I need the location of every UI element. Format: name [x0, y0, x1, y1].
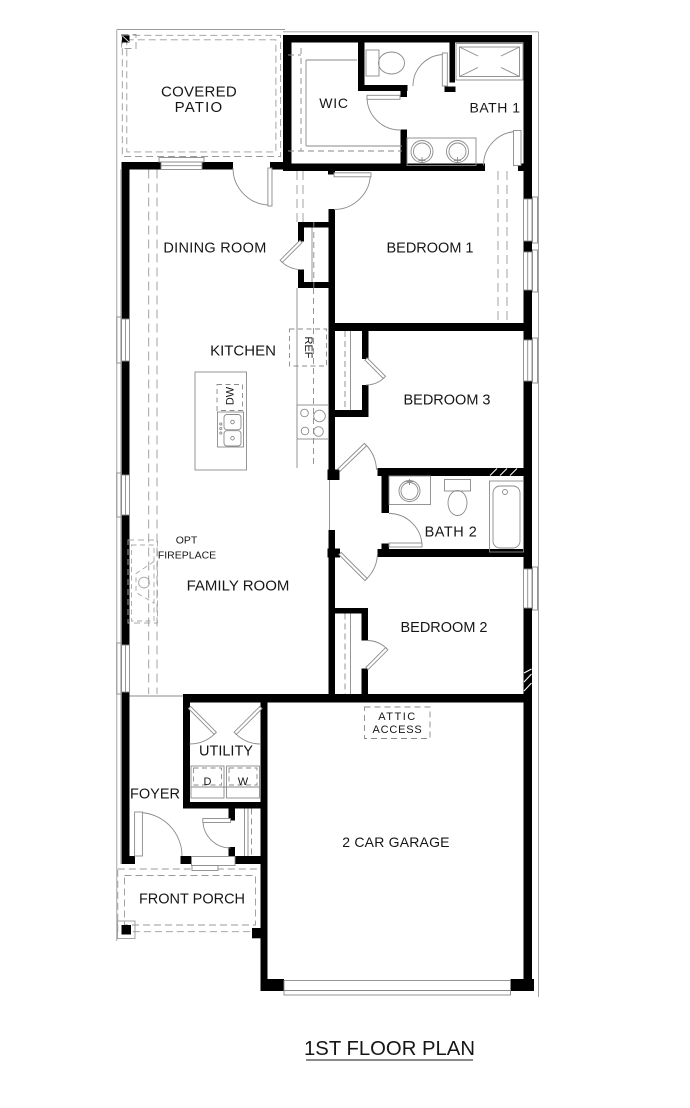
svg-text:BEDROOM 1: BEDROOM 1: [386, 241, 473, 257]
svg-text:PATIO: PATIO: [175, 99, 224, 116]
svg-text:FIREPLACE: FIREPLACE: [158, 550, 216, 562]
svg-text:ACCESS: ACCESS: [372, 724, 422, 736]
svg-text:BEDROOM 2: BEDROOM 2: [400, 620, 487, 636]
svg-text:WIC: WIC: [319, 95, 349, 111]
svg-text:DINING ROOM: DINING ROOM: [163, 241, 266, 257]
svg-text:BEDROOM 3: BEDROOM 3: [403, 393, 490, 409]
svg-text:ATTIC: ATTIC: [378, 711, 416, 723]
svg-text:W: W: [238, 776, 249, 788]
svg-text:FOYER: FOYER: [130, 787, 180, 803]
svg-text:UTILITY: UTILITY: [199, 744, 253, 760]
svg-text:FAMILY ROOM: FAMILY ROOM: [187, 578, 290, 595]
svg-text:REF: REF: [302, 337, 314, 359]
svg-text:FRONT PORCH: FRONT PORCH: [139, 892, 245, 908]
svg-text:COVERED: COVERED: [161, 84, 237, 101]
svg-text:OPT: OPT: [176, 535, 198, 547]
svg-text:KITCHEN: KITCHEN: [210, 343, 276, 360]
svg-text:D: D: [204, 776, 212, 788]
svg-text:DW: DW: [224, 386, 236, 405]
svg-text:1ST FLOOR PLAN: 1ST FLOOR PLAN: [304, 1038, 475, 1060]
svg-text:BATH 2: BATH 2: [425, 525, 478, 541]
svg-text:BATH 1: BATH 1: [470, 100, 521, 116]
svg-text:2 CAR GARAGE: 2 CAR GARAGE: [342, 834, 449, 850]
